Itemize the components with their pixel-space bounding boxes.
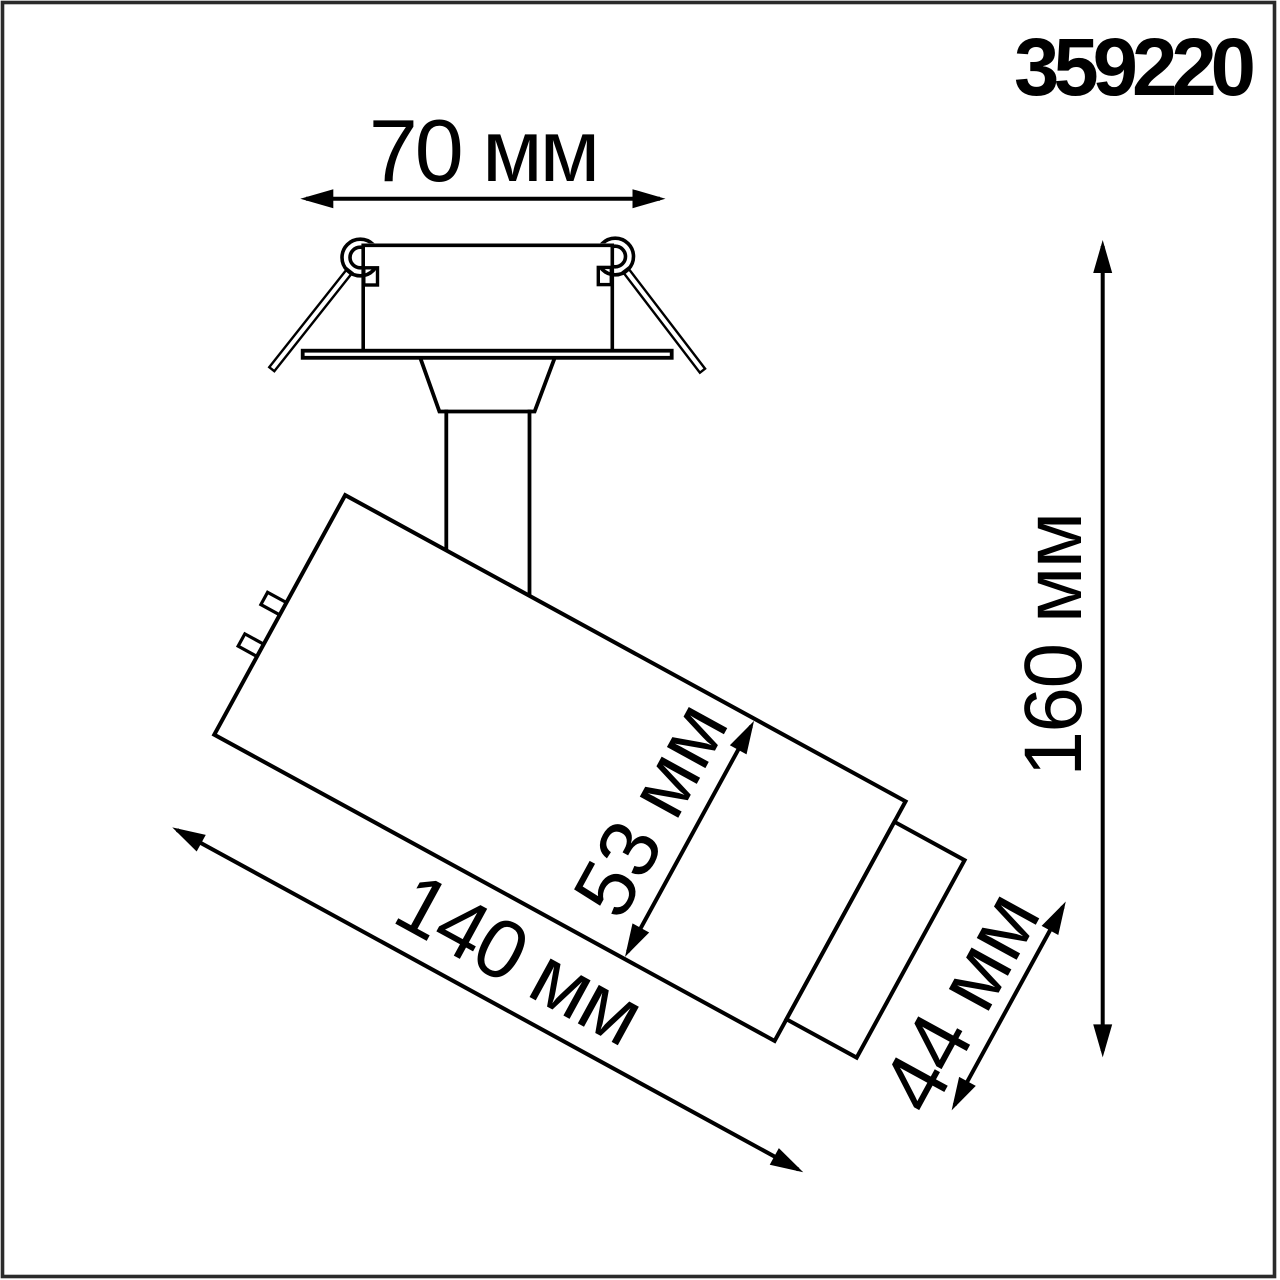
svg-text:70 мм: 70 мм [369, 101, 597, 200]
svg-text:160 мм: 160 мм [1008, 513, 1099, 776]
svg-text:359220: 359220 [1014, 22, 1253, 113]
